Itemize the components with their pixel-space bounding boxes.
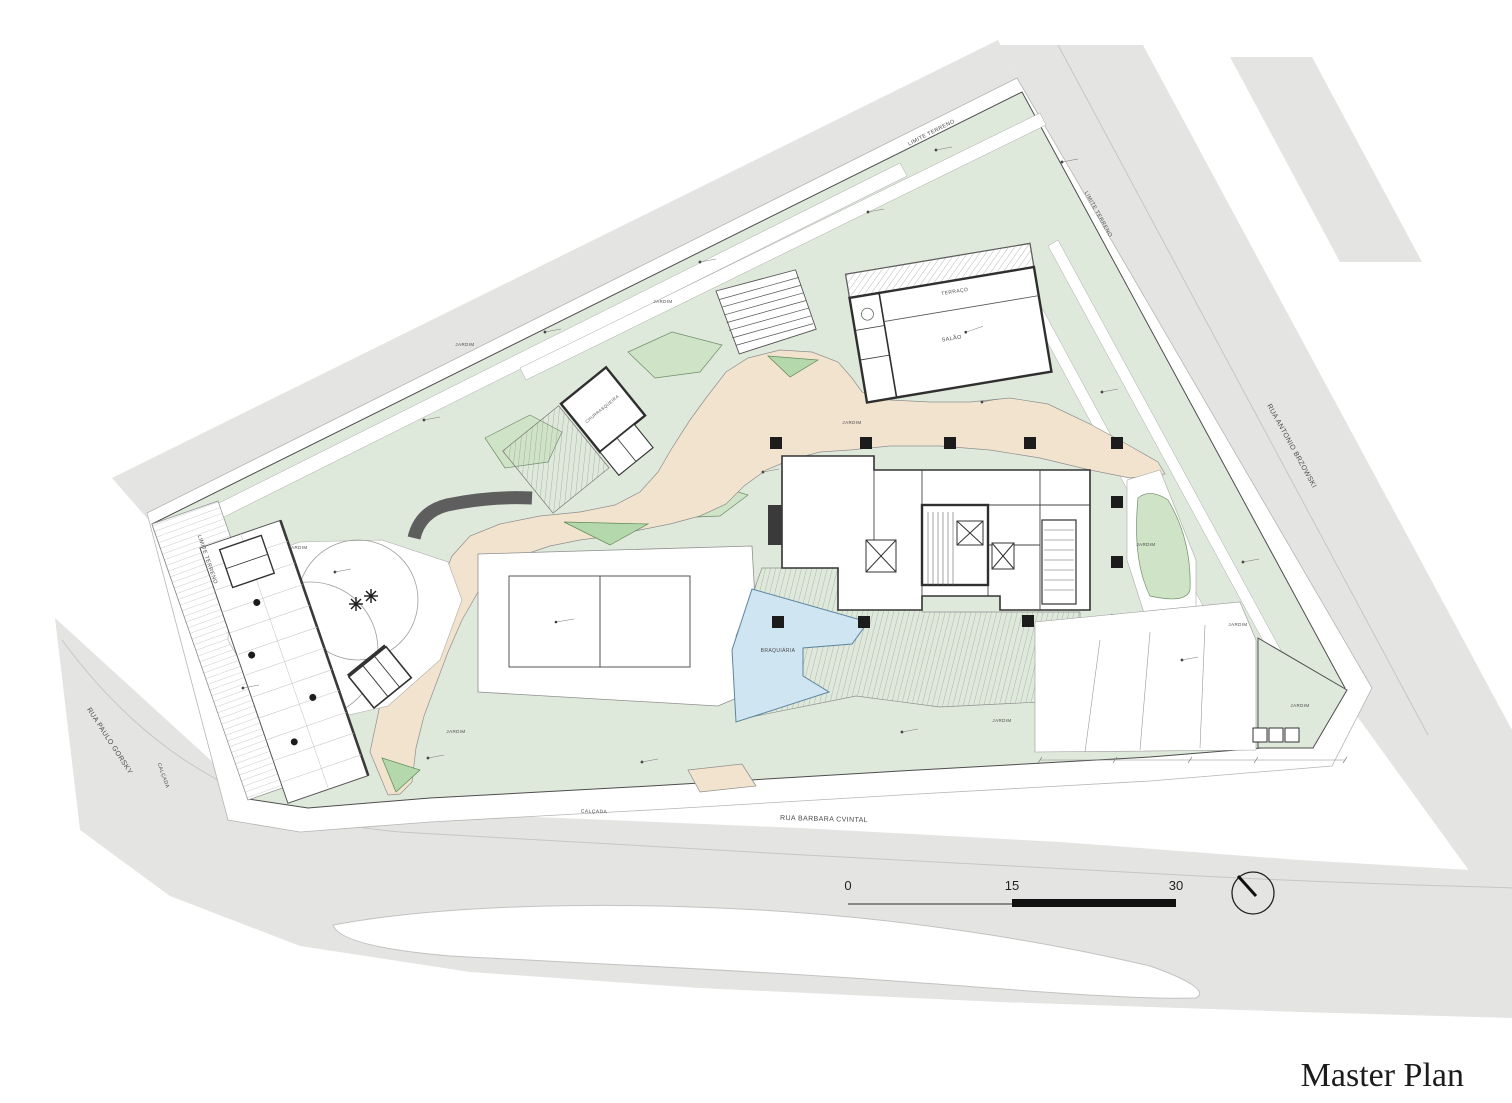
scale-tick-30: 30 xyxy=(1169,878,1183,893)
plan-label: JARDIM xyxy=(992,718,1011,723)
scale-bar-thick-segment xyxy=(1012,899,1176,907)
scale-tick-15: 15 xyxy=(1005,878,1019,893)
sports-court xyxy=(478,546,760,706)
plan-label: CALÇADA xyxy=(581,809,608,816)
service-bins xyxy=(1253,728,1299,742)
master-plan-sheet: RUA PAULO GORSKYCALÇADARUA BARBARA CVINT… xyxy=(0,0,1512,1103)
plan-label: JARDIM xyxy=(455,342,474,347)
plan-label: JARDIM xyxy=(1290,703,1309,708)
plan-label: JARDIM xyxy=(446,729,465,734)
plan-label: JARDIM xyxy=(842,420,861,425)
plan-label: BRAQUIÁRIA xyxy=(761,647,796,654)
scale-tick-0: 0 xyxy=(844,878,851,893)
site-plan-drawing: RUA PAULO GORSKYCALÇADARUA BARBARA CVINT… xyxy=(0,0,1512,1103)
plan-label: JARDIM xyxy=(1228,622,1247,627)
plan-label: JARDIM xyxy=(653,299,672,304)
plan-label: JARDIM xyxy=(1136,542,1155,547)
plan-label: JARDIM xyxy=(288,545,307,550)
sheet-title: Master Plan xyxy=(1301,1057,1464,1094)
entry-canopy xyxy=(768,505,782,545)
side-stair xyxy=(1042,520,1076,604)
